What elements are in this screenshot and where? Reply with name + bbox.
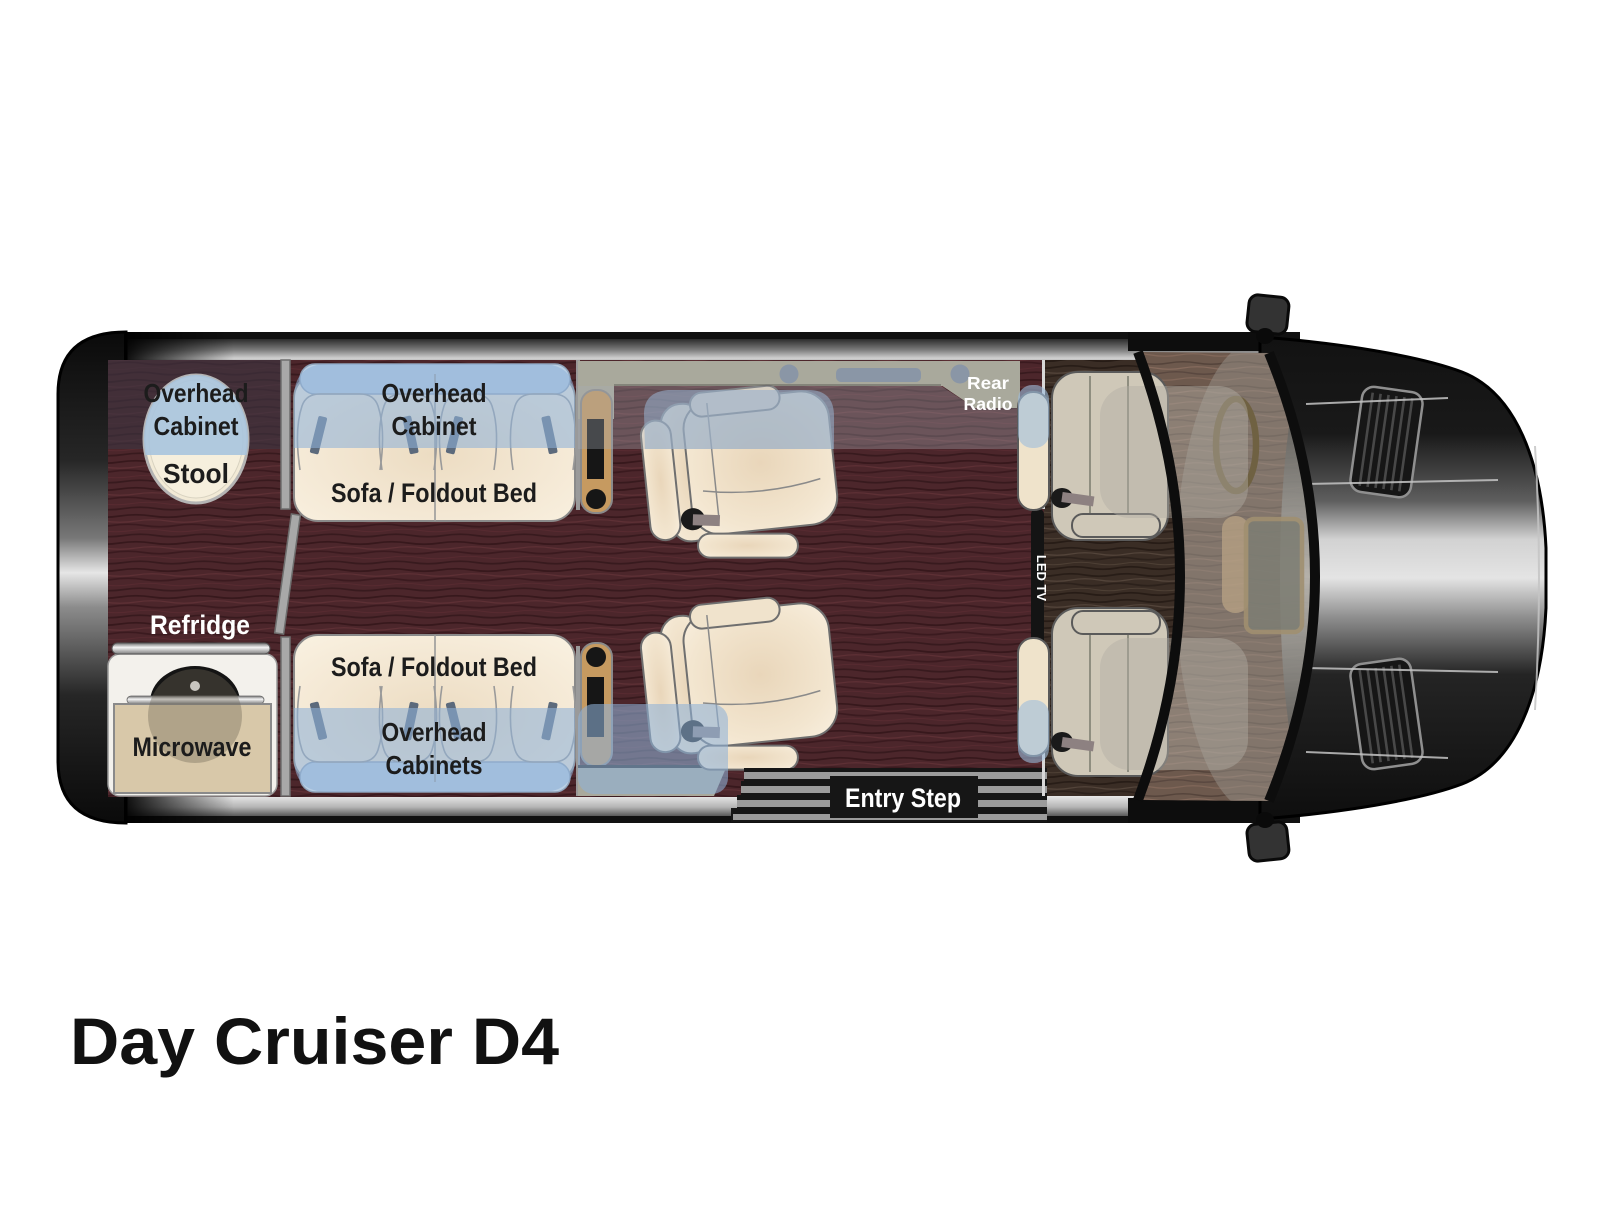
svg-text:Rear: Rear (967, 373, 1009, 393)
svg-text:Microwave: Microwave (133, 732, 252, 762)
svg-text:Refridge: Refridge (150, 610, 250, 640)
svg-text:Stool: Stool (163, 458, 229, 489)
svg-text:LED TV: LED TV (1034, 555, 1049, 602)
svg-text:Cabinet: Cabinet (154, 411, 239, 441)
svg-text:Overhead: Overhead (144, 378, 249, 408)
svg-text:Cabinet: Cabinet (392, 411, 477, 441)
svg-text:Day Cruiser D4: Day Cruiser D4 (70, 1004, 559, 1078)
svg-text:Sofa / Foldout Bed: Sofa / Foldout Bed (331, 478, 537, 508)
svg-text:Sofa / Foldout Bed: Sofa / Foldout Bed (331, 652, 537, 682)
svg-text:Overhead: Overhead (382, 378, 487, 408)
svg-text:Entry Step: Entry Step (845, 783, 961, 813)
svg-text:Cabinets: Cabinets (386, 750, 483, 780)
svg-text:Radio: Radio (964, 394, 1013, 414)
svg-text:Overhead: Overhead (382, 717, 487, 747)
